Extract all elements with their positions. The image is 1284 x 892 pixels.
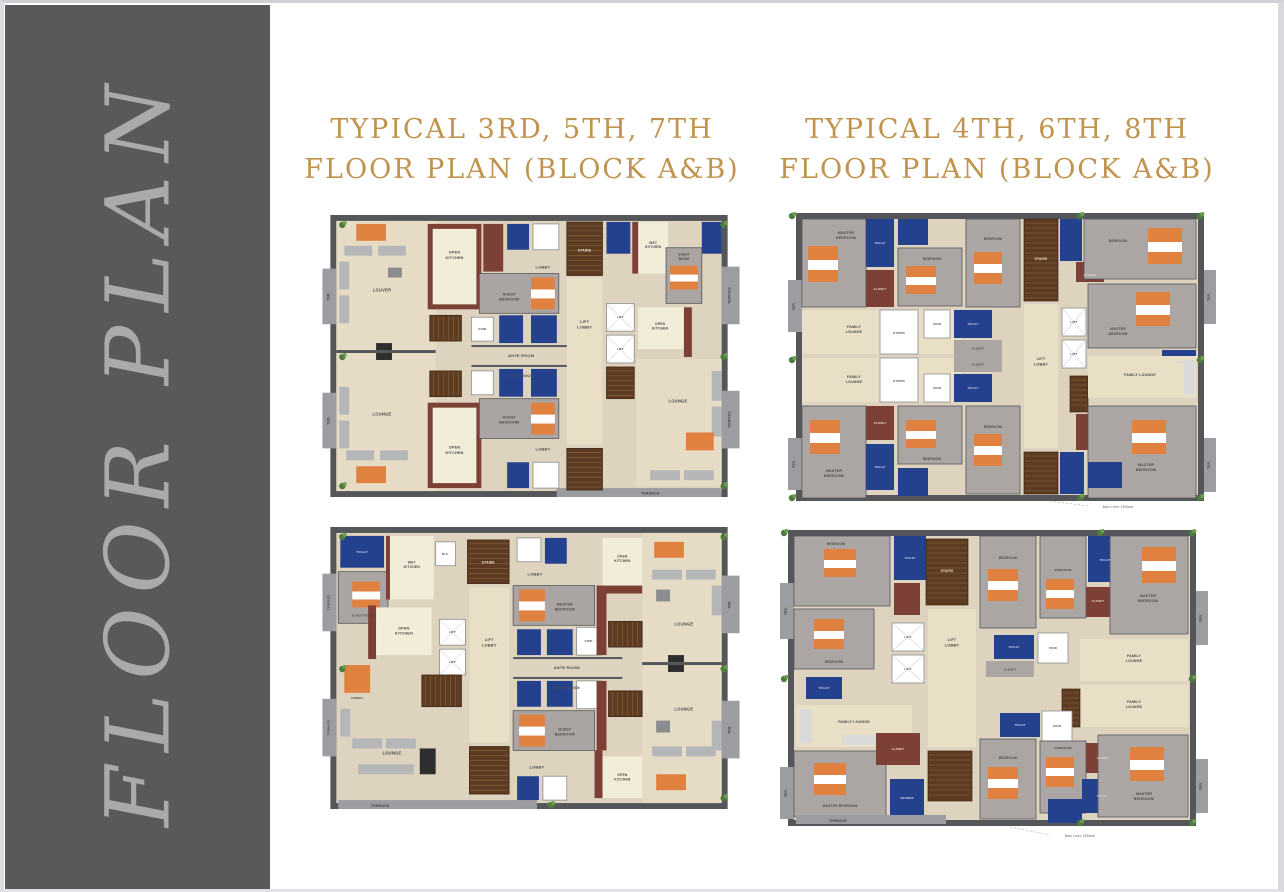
plan-rect [656, 721, 670, 733]
room-label: BEDROOM [1108, 332, 1127, 336]
plan-rect [668, 655, 684, 662]
plant-icon [724, 482, 728, 486]
room-label: FAMILY LOUNGE [838, 720, 870, 724]
room-label: CLOSET [892, 747, 905, 751]
room-label: LIFT [904, 635, 911, 639]
room-label: STAIRS [1035, 257, 1048, 261]
room-label: MASTER [826, 469, 843, 473]
plan-rect [339, 387, 349, 415]
plant-icon [343, 665, 347, 669]
plan-rect [338, 800, 537, 809]
room-label: ANTE ROOM [508, 373, 535, 378]
plan-rect [684, 307, 692, 357]
room-label: LOUNGE [382, 750, 401, 755]
room-label: OPEN [449, 445, 461, 449]
room-label: LIFT [617, 315, 624, 319]
plan-rect [606, 222, 630, 254]
room-label: BEDROOM [555, 607, 575, 611]
plan-rect [1024, 304, 1058, 448]
plant-icon [724, 221, 728, 225]
plant-icon [724, 665, 728, 669]
room-label: OPEN [449, 251, 461, 255]
plant-icon [1100, 529, 1104, 533]
plan-rect [545, 538, 567, 564]
room-label: BEDROOM [999, 556, 1017, 560]
room-label: LOUNGE [1126, 659, 1143, 663]
plan-rect [386, 536, 390, 600]
plan-rect [808, 260, 838, 270]
plan-rect [340, 709, 350, 737]
room-label: BEDROOM [824, 474, 844, 478]
room-label: VOID [585, 639, 594, 643]
plan-rect [906, 277, 936, 285]
room-label: KITCHEN [614, 778, 631, 782]
room-label: GUEST [503, 416, 517, 420]
plan-rect [656, 590, 670, 602]
room-label: TERRACE [728, 411, 732, 428]
plan-rect [1046, 768, 1074, 776]
room-label: BEDROOM [984, 425, 1002, 429]
room-label: LIFT [1037, 357, 1046, 361]
plan-rect [513, 657, 622, 659]
room-label: LIFT [485, 637, 495, 642]
room-label: TER. [728, 725, 732, 733]
room-label: BEDROOM [836, 236, 856, 240]
plan-rect [388, 268, 402, 278]
plan-rect [668, 665, 684, 672]
header-left-plan: TYPICAL 3RD, 5TH, 7TH FLOOR PLAN (BLOCK … [292, 110, 752, 190]
room-label: LOBBY [1034, 363, 1049, 367]
plan-rect [531, 315, 557, 343]
plan-rect [898, 468, 928, 496]
room-label: LOBBY [577, 325, 592, 330]
plant-icon [1192, 819, 1196, 823]
plan-rect [517, 776, 539, 800]
room-label: STAIRS [893, 379, 905, 383]
plan-rect [928, 609, 976, 747]
floor-plan-3rd-5th-7th-block-b: TOILETGUEST ROOMWETKITCHENW.C.OPENKITCHE… [322, 524, 740, 812]
room-label: TERRACE [371, 804, 390, 808]
plan-rect [531, 369, 557, 397]
room-label: OPEN [617, 555, 628, 559]
plan-rect [507, 462, 529, 488]
room-label: OPEN [655, 322, 666, 326]
plan-rect [531, 289, 555, 298]
stairs [928, 751, 972, 801]
plan-rect [686, 570, 716, 580]
plan-rect [344, 246, 372, 256]
plant-icon [792, 356, 796, 360]
header-left-line2: FLOOR PLAN (BLOCK A&B) [292, 150, 752, 190]
room-label: TER. [784, 789, 788, 797]
room-label: BEDROOM [923, 457, 941, 461]
room-label: MASTER [1138, 463, 1155, 467]
plant-icon [724, 533, 728, 537]
plan-rect [519, 727, 545, 736]
room-label: CLOSET [1084, 273, 1097, 277]
room-label: BEDROOM [1054, 746, 1071, 750]
room-label: FAMILY [847, 375, 861, 379]
plant-icon [343, 221, 347, 225]
plan-rect [654, 542, 684, 558]
room-label: KITCHEN [445, 451, 463, 455]
room-label: TOILET [874, 465, 885, 469]
room-label: GUEST ROOM [352, 613, 375, 617]
room-label: TOILET [1096, 794, 1107, 798]
room-label: BEDROOM [499, 297, 519, 301]
plan-rect [517, 629, 541, 655]
room-label: CLOSET [1097, 756, 1110, 760]
plan-rect [483, 224, 503, 272]
annotation-leader [1050, 501, 1088, 506]
floor-plan-3rd-5th-7th-block-a: LOUVERLOUNGEOPENKITCHENOPENKITCHENLOBBYG… [322, 212, 740, 500]
room-label: Max riser 150mm [1065, 834, 1096, 838]
plant-icon [1200, 212, 1204, 216]
room-label: GUEST [503, 292, 517, 296]
plan-rect [974, 446, 1002, 455]
plan-rect [1046, 590, 1074, 598]
room-label: MASTER [1140, 594, 1157, 598]
plan-rect [380, 450, 408, 460]
plan-rect [652, 570, 682, 580]
plant-icon [784, 675, 788, 679]
room-label: LIFT [580, 319, 590, 324]
plan-rect [603, 586, 643, 594]
plan-rect [1184, 360, 1194, 394]
room-label: LOUVER [373, 287, 392, 292]
plan-rect [597, 681, 607, 751]
plan-rect [595, 750, 603, 798]
room-label: SHOWER [900, 796, 914, 800]
room-label: LOUNGE [373, 412, 392, 417]
plan-rect [499, 315, 523, 343]
room-label: TOILET [904, 556, 915, 560]
plan-rect [1132, 433, 1166, 443]
plan-rect [336, 350, 435, 353]
plan-rect [1060, 219, 1082, 261]
plan-rect [386, 739, 416, 749]
room-label: TOILET [818, 686, 829, 690]
room-label: BEDROOM [923, 257, 941, 261]
plan-rect [471, 371, 493, 395]
room-label: VOID [933, 322, 942, 326]
room-label: MASTER [838, 231, 855, 235]
stairs [430, 371, 462, 397]
room-label: ANTE ROOM [554, 665, 581, 670]
header-right-plan: TYPICAL 4TH, 6TH, 8TH FLOOR PLAN (BLOCK … [772, 110, 1222, 190]
plan-rect [1130, 760, 1164, 770]
room-label: KITCHEN [404, 565, 421, 569]
room-label: TOILET [967, 322, 978, 326]
room-label: CLOSET [874, 421, 887, 425]
room-label: FAMILY [1127, 700, 1141, 704]
floor-plan-bottom-right: BEDROOMBEDROOMTOILETTOILETFAMILY LOUNGEM… [780, 527, 1216, 845]
sidebar: FLOOR PLAN [5, 5, 270, 892]
plan-rect [517, 681, 541, 707]
plant-icon [724, 353, 728, 357]
plan-rect [352, 592, 380, 600]
room-label: BEDROOM [984, 237, 1002, 241]
room-label: MASTER BEDROOM [823, 804, 858, 808]
plant-icon [792, 494, 796, 498]
room-label: BEDROOM [827, 542, 845, 546]
plan-rect [1148, 242, 1182, 252]
room-label: CLOSET [972, 363, 985, 367]
room-label: TER. [792, 302, 796, 310]
plan-rect [346, 450, 374, 460]
annotation-leader [1010, 827, 1050, 835]
stairs [1070, 376, 1088, 412]
sidebar-vertical-title: FLOOR PLAN [86, 70, 189, 826]
room-label: ANTE ROOM [554, 685, 581, 690]
room-label: TER. [1207, 293, 1211, 301]
plan-rect [531, 415, 555, 424]
plan-rect [1088, 462, 1122, 488]
room-label: TER. [792, 460, 796, 468]
room-label: WET [408, 561, 417, 565]
plan-rect [358, 764, 414, 774]
plan-rect [507, 224, 529, 250]
room-label: LOUNGE [668, 399, 687, 404]
room-label: LOUNGE [1126, 705, 1143, 709]
room-label: ROOM [679, 257, 690, 261]
plant-icon [1080, 819, 1084, 823]
plan-rect [656, 774, 686, 790]
room-label: Max riser 150mm [1103, 505, 1134, 509]
room-label: GUEST [558, 728, 572, 732]
plan-rect [352, 739, 382, 749]
room-label: LOUNGE [846, 330, 863, 334]
plant-icon [343, 533, 347, 537]
room-label: MASTER [1110, 327, 1126, 331]
room-label: LIFT [904, 667, 911, 671]
plan-rect [1136, 305, 1170, 315]
room-label: BEDROOM [1054, 568, 1071, 572]
plan-rect [814, 775, 846, 784]
room-label: TER. [1199, 614, 1203, 622]
room-label: LOBBY [535, 446, 550, 451]
plan-rect [670, 275, 698, 282]
room-label: STAIRS [482, 561, 495, 565]
plan-rect [796, 815, 946, 824]
room-label: LIFT [449, 630, 456, 634]
room-label: MASTER [1136, 792, 1153, 796]
plant-icon [1192, 675, 1196, 679]
plan-rect [378, 246, 406, 256]
room-label: BEDROOM [999, 756, 1017, 760]
room-label: TERRACE [829, 819, 847, 823]
room-label: TOILET [356, 550, 368, 554]
room-label: TER. [1199, 782, 1203, 790]
room-label: TOILET [1014, 723, 1025, 727]
room-label: LIFT [1070, 352, 1077, 356]
stairs [1024, 452, 1058, 494]
room-label: W.C. [442, 552, 449, 556]
plan-rect [543, 776, 567, 800]
plan-rect [684, 470, 714, 480]
plan-rect [988, 779, 1018, 788]
room-label: TERRACE [728, 287, 732, 304]
plan-rect [800, 709, 812, 743]
stairs [567, 448, 603, 490]
room-label: VOID [478, 327, 487, 331]
stairs [606, 367, 634, 399]
plant-icon [1200, 356, 1204, 360]
plan-rect [1060, 452, 1084, 494]
room-label: TER. [784, 607, 788, 615]
plan-rect [712, 721, 722, 751]
room-label: BEDROOM [499, 421, 519, 425]
room-label: LOBBY [482, 643, 497, 648]
plan-rect [420, 748, 436, 774]
header-left-line1: TYPICAL 3RD, 5TH, 7TH [292, 110, 752, 150]
room-label: CLOSET [972, 347, 985, 351]
header-right-line2: FLOOR PLAN (BLOCK A&B) [772, 150, 1222, 190]
room-label: LOBBY [535, 265, 550, 270]
room-label: LIFT [1070, 320, 1077, 324]
plan-rect [533, 224, 559, 250]
room-label: VOID [1053, 724, 1062, 728]
room-label: BEDROOM [1109, 239, 1127, 243]
room-label: BEDROOM [825, 660, 843, 664]
plan-rect [636, 359, 721, 486]
plan-rect [702, 222, 722, 254]
plant-icon [724, 794, 728, 798]
room-label: TOILET [967, 386, 978, 390]
stairs [430, 315, 462, 341]
room-label: CLOSET [1092, 599, 1105, 603]
room-label: KITCHEN [645, 245, 662, 249]
room-label: TER. [326, 416, 330, 424]
room-label: BEDROOM [1134, 797, 1154, 801]
plant-icon [792, 212, 796, 216]
room-label: KITCHEN [614, 559, 631, 563]
plan-rect [376, 343, 392, 350]
room-label: FAMILY [1127, 654, 1141, 658]
room-label: CLOSET [874, 287, 887, 291]
room-label: BEDROOM [1136, 468, 1156, 472]
plan-rect [814, 631, 844, 639]
room-label: TOILET [1099, 558, 1110, 562]
plan-rect [517, 538, 541, 562]
floor-plan-4th-6th-8th-block-b: BEDROOMBEDROOMTOILETTOILETFAMILY LOUNGEM… [780, 527, 1216, 845]
plan-rect [339, 262, 349, 290]
plan-rect [356, 466, 386, 483]
plan-rect [652, 746, 682, 756]
plan-rect [344, 665, 370, 693]
room-label: TER. [728, 600, 732, 608]
plan-rect [533, 462, 559, 488]
plant-icon [551, 801, 555, 805]
room-label: KITCHEN [445, 256, 463, 260]
plan-rect [642, 662, 721, 665]
room-label: FAMILY LOUNGE [1124, 373, 1156, 377]
floor-plan-top-right: MASTERBEDROOMTOILETCLOSETBEDROOMBEDROOMC… [788, 210, 1218, 510]
plan-rect [898, 219, 928, 245]
floor-plan-top-left: LOUVERLOUNGEOPENKITCHENOPENKITCHENLOBBYG… [322, 212, 740, 500]
plan-rect [824, 560, 856, 568]
plan-rect [1142, 561, 1176, 571]
room-label: KITCHEN [652, 327, 669, 331]
room-label: TOILET [874, 241, 885, 245]
plant-icon [343, 482, 347, 486]
room-label: LIFT [948, 638, 957, 642]
room-label: DINING [351, 696, 363, 700]
room-label: TERRACE [326, 595, 330, 611]
floor-plan-4th-6th-8th-block-a: MASTERBEDROOMTOILETCLOSETBEDROOMBEDROOMC… [788, 210, 1218, 510]
room-label: OPEN [617, 773, 628, 777]
room-label: WET [649, 241, 658, 245]
plan-rect [339, 295, 349, 323]
plan-rect [712, 586, 722, 616]
plan-rect [974, 264, 1002, 273]
room-label: LOUNGE [674, 621, 693, 626]
room-label: TOILET [1173, 360, 1184, 364]
plan-rect [471, 345, 570, 347]
room-label: TER. [326, 292, 330, 300]
plan-rect [513, 677, 622, 679]
plan-rect [597, 586, 607, 656]
plan-rect [632, 222, 638, 274]
room-label: LOBBY [945, 644, 960, 648]
room-label: TOILET [1008, 645, 1019, 649]
room-label: KITCHEN [395, 632, 413, 636]
plan-rect [686, 746, 716, 756]
plan-rect [1048, 799, 1082, 823]
plan-rect [471, 365, 570, 367]
plant-icon [343, 353, 347, 357]
room-label: LOBBY [528, 572, 543, 577]
room-label: LOBBY [530, 764, 545, 769]
plant-icon [1200, 494, 1204, 498]
plan-rect [988, 581, 1018, 590]
room-label: BEDROOM [555, 733, 575, 737]
plan-rect [906, 431, 936, 439]
plan-rect [356, 224, 386, 241]
plan-rect [469, 588, 509, 743]
room-label: MASTER [557, 602, 573, 606]
plan-rect [433, 229, 477, 304]
plan-rect [686, 432, 714, 450]
room-label: LIFT [449, 660, 456, 664]
room-label: GUEST [678, 253, 690, 257]
room-label: STAIRS [893, 331, 905, 335]
plan-rect [339, 421, 349, 449]
plant-icon [1192, 529, 1196, 533]
room-label: BEDROOM [1138, 599, 1158, 603]
plan-rect [519, 601, 545, 610]
plan-rect [547, 629, 573, 655]
room-label: FAMILY [847, 325, 861, 329]
room-label: LOUNGE [846, 380, 863, 384]
plant-icon [1080, 212, 1084, 216]
room-label: VOID [933, 386, 942, 390]
room-label: VOID [1049, 646, 1058, 650]
header-right-line1: TYPICAL 4TH, 6TH, 8TH [772, 110, 1222, 150]
room-label: CLOSET [1004, 668, 1017, 672]
room-label: TER. [1207, 461, 1211, 469]
room-label: OPEN [398, 626, 410, 630]
plan-rect [712, 407, 722, 437]
plant-icon [1080, 494, 1084, 498]
plan-rect [650, 470, 680, 480]
plan-rect [810, 433, 840, 443]
room-label: LOUNGE [674, 707, 693, 712]
plan-rect [894, 583, 920, 615]
plant-icon [784, 529, 788, 533]
plan-rect [567, 278, 603, 445]
room-label: STAIRS [578, 249, 592, 253]
